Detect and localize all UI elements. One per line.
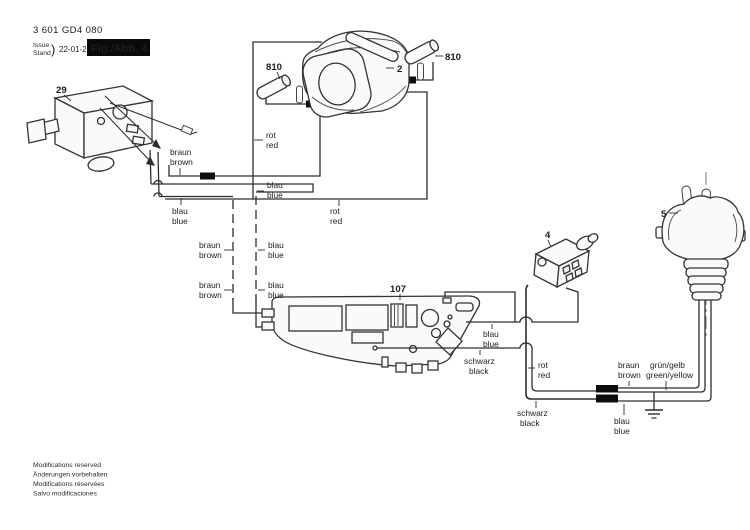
figure-label: Fig./Abb. 4 bbox=[91, 43, 148, 55]
label-braun-3-en: brown bbox=[199, 290, 222, 300]
wire-blau-upper bbox=[151, 184, 313, 192]
wire-blau-module-to-connector bbox=[466, 288, 578, 322]
module-potentiometer bbox=[422, 310, 439, 327]
crimp-pin bbox=[297, 86, 303, 103]
label-rot-2-en: red bbox=[330, 216, 342, 226]
label-rot-3-de: rot bbox=[538, 360, 548, 370]
stator-ref-label: 2 bbox=[397, 64, 402, 75]
label-braun-2-en: brown bbox=[199, 250, 222, 260]
switch-roller bbox=[87, 155, 115, 172]
issue-date: 22-01-26 bbox=[59, 45, 92, 54]
label-braun-1-en: brown bbox=[170, 157, 193, 167]
wire-rot-connector-to-sleeve bbox=[526, 285, 597, 399]
switch-29: 29 bbox=[27, 85, 197, 196]
label-blau-3-en: blue bbox=[268, 250, 284, 260]
label-rot-1-de: rot bbox=[266, 130, 276, 140]
crimp-pin bbox=[418, 63, 424, 80]
label-gruen-de: grün/gelb bbox=[650, 360, 685, 370]
label-rot-2-de: rot bbox=[330, 206, 340, 216]
label-blau-4-de: blau bbox=[268, 280, 284, 290]
label-braun-4-en: brown bbox=[618, 370, 641, 380]
label-blau-6-de: blau bbox=[614, 416, 630, 426]
footer-notes: Modifications reserved Änderungen vorbeh… bbox=[33, 462, 108, 498]
label-gruen-en: green/yellow bbox=[646, 370, 694, 380]
crimp-sleeve bbox=[596, 385, 618, 393]
earth-ground-icon bbox=[645, 392, 663, 418]
footer-line-4: Salvo modificaciones bbox=[33, 491, 97, 498]
mains-plug-5: 5 bbox=[656, 172, 745, 336]
label-braun-4-de: braun bbox=[618, 360, 640, 370]
label-blau-5-en: blue bbox=[483, 339, 499, 349]
issue-brace: ) bbox=[51, 42, 55, 57]
label-blau-2-en: blue bbox=[172, 216, 188, 226]
solder-pad bbox=[373, 346, 377, 350]
wire-blau-cord bbox=[618, 296, 711, 401]
module-tab bbox=[262, 309, 274, 317]
label-blau-3-de: blau bbox=[268, 240, 284, 250]
module-ref-label: 107 bbox=[390, 284, 406, 295]
lead-terminal bbox=[181, 125, 193, 134]
issue-label-de: Stand bbox=[33, 50, 51, 57]
electronics-module-107: 107 bbox=[262, 284, 480, 373]
part-number: 3 601 GD4 080 bbox=[33, 25, 103, 36]
label-braun-3-de: braun bbox=[199, 280, 221, 290]
label-schwarz-2-de: schwarz bbox=[517, 408, 548, 418]
label-blau-4-en: blue bbox=[268, 290, 284, 300]
label-schwarz-1-de: schwarz bbox=[464, 356, 495, 366]
connector-4: 4 bbox=[534, 230, 599, 287]
label-rot-1-en: red bbox=[266, 140, 278, 150]
label-blau-5-de: blau bbox=[483, 329, 499, 339]
label-braun-2-de: braun bbox=[199, 240, 221, 250]
label-schwarz-2-en: black bbox=[520, 418, 540, 428]
plug-ref-label: 5 bbox=[661, 209, 667, 220]
crimp-sleeve bbox=[200, 173, 215, 180]
wiring-diagram-page: 3 601 GD4 080 Issue Stand ) 22-01-26 Fig… bbox=[0, 0, 750, 530]
issue-label-en: Issue bbox=[33, 42, 49, 49]
arrow-icon bbox=[152, 139, 161, 149]
label-rot-3-en: red bbox=[538, 370, 550, 380]
terminal-810-right-label: 810 bbox=[445, 52, 461, 63]
wiring-diagram: 3 601 GD4 080 Issue Stand ) 22-01-26 Fig… bbox=[0, 0, 750, 530]
wire-braun-to-module bbox=[233, 298, 263, 313]
label-blau-1-de: blau bbox=[267, 180, 283, 190]
label-blau-2-de: blau bbox=[172, 206, 188, 216]
footer-line-2: Änderungen vorbehalten bbox=[33, 471, 108, 479]
footer-line-3: Modifications réservées bbox=[33, 481, 105, 488]
module-component bbox=[289, 306, 342, 331]
label-braun-1-de: braun bbox=[170, 147, 192, 157]
terminal-810-right bbox=[403, 39, 440, 66]
module-coil bbox=[391, 304, 403, 327]
footer-line-1: Modifications reserved bbox=[33, 462, 101, 469]
stator-2: 2 810 810 bbox=[255, 31, 461, 120]
label-blau-1-en: blue bbox=[267, 190, 283, 200]
crimp-sleeve bbox=[596, 395, 618, 403]
terminal-810-left-label: 810 bbox=[266, 62, 282, 73]
terminal-810-left bbox=[255, 74, 292, 101]
module-tab bbox=[262, 322, 274, 330]
label-schwarz-1-en: black bbox=[469, 366, 489, 376]
title-block: 3 601 GD4 080 Issue Stand ) 22-01-26 Fig… bbox=[33, 25, 150, 57]
switch-ref-label: 29 bbox=[56, 85, 67, 96]
module-component bbox=[346, 305, 388, 330]
connector-ref-label: 4 bbox=[545, 230, 551, 241]
label-blau-6-en: blue bbox=[614, 426, 630, 436]
